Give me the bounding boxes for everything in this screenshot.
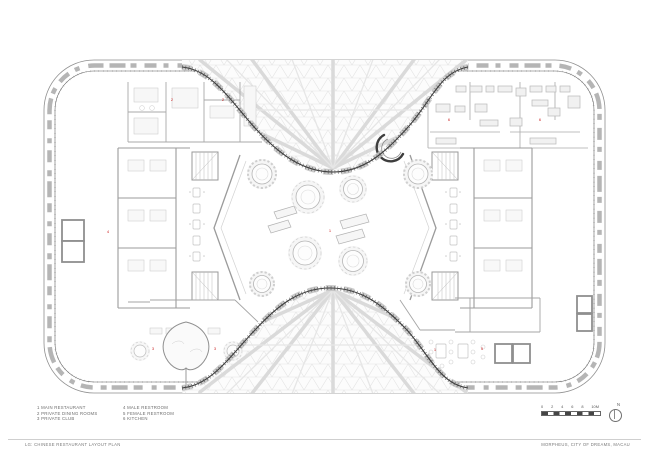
north-arrow-icon xyxy=(609,409,622,422)
legend-item: 6 KITCHEN xyxy=(123,416,174,422)
legend-column-2: 4 MALE RESTROOM 5 FEMALE RESTROOM 6 KITC… xyxy=(123,405,174,422)
scale-bar xyxy=(541,411,601,416)
project-title: MORPHEUS, CITY OF DREAMS, MACAU xyxy=(541,442,630,447)
north-arrow-needle xyxy=(614,410,615,419)
north-label: N xyxy=(617,402,620,407)
floor-plan-drawing: 2 2 6 6 1 3 3 1 5 4 xyxy=(0,0,649,454)
svg-text:5: 5 xyxy=(481,346,484,351)
scale-label: 4 xyxy=(561,404,563,409)
svg-text:4: 4 xyxy=(107,229,110,234)
svg-text:3: 3 xyxy=(214,346,217,351)
scale-bar-labels: 0 2 4 6 8 10M xyxy=(541,404,599,409)
wing-left xyxy=(118,148,246,308)
svg-text:2: 2 xyxy=(222,97,225,102)
svg-text:6: 6 xyxy=(539,117,542,122)
legend-column-1: 1 MAIN RESTAURANT 2 PRIVATE DINING ROOMS… xyxy=(37,405,98,422)
kitchen-top-right xyxy=(428,82,588,148)
svg-text:1: 1 xyxy=(329,228,332,233)
scale-label: 8 xyxy=(581,404,583,409)
legend-item: 3 PRIVATE CLUB xyxy=(37,416,98,422)
service-core-left xyxy=(62,220,84,262)
scale-label: 2 xyxy=(551,404,553,409)
footer-divider xyxy=(8,439,641,440)
banquette-seating xyxy=(268,206,369,244)
legend-item: 4 MALE RESTROOM xyxy=(123,405,174,411)
drawing-sheet: { "document": { "type": "architectural f… xyxy=(0,0,649,454)
sheet-title: LG: CHINESE RESTAURANT LAYOUT PLAN xyxy=(25,442,121,447)
svg-text:6: 6 xyxy=(448,117,451,122)
scale-label: 10M xyxy=(591,404,599,409)
kitchen-equipment xyxy=(436,86,580,144)
scale-label: 6 xyxy=(571,404,573,409)
svg-text:3: 3 xyxy=(152,346,155,351)
scale-label: 0 xyxy=(541,404,543,409)
